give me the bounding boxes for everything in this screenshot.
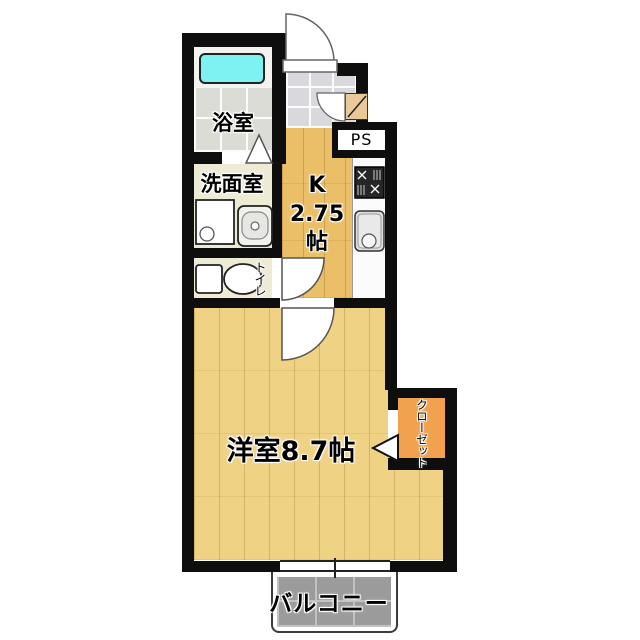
- shoe-cabinet: [345, 93, 368, 120]
- kitchen-counter: [352, 158, 385, 298]
- western-room-label: 洋室8.7帖: [191, 429, 391, 468]
- closet-label: クローゼット: [414, 399, 430, 459]
- floor-plan: 浴室 洗面室 トイレ K 2.75 帖 PS 洋室8.7帖 クローゼット バルコ…: [0, 0, 640, 640]
- room-door-opening: [280, 298, 334, 308]
- bathroom-door-opening: [222, 152, 272, 164]
- washroom-label: 洗面室: [188, 168, 276, 198]
- wall-right-kitchen: [385, 122, 397, 390]
- wall-bathroom-right: [272, 33, 286, 164]
- wall-right-lower: [443, 470, 457, 572]
- kitchen-label-unit: 帖: [285, 229, 349, 258]
- kitchen-label: K 2.75 帖: [285, 172, 349, 258]
- entrance-door-swing: [286, 14, 334, 62]
- exterior-mask: [397, 308, 457, 388]
- wall-washroom-toilet: [182, 248, 282, 258]
- wall-top-bathroom: [182, 33, 284, 47]
- toilet-label: トイレ: [252, 261, 269, 301]
- balcony-window: [280, 560, 390, 572]
- kitchen-label-size: 2.75: [285, 201, 349, 230]
- balcony-label: バルコニー: [249, 584, 409, 618]
- pipe-space-label: PS: [338, 130, 385, 150]
- bathtub: [199, 53, 265, 84]
- bathroom-label: 浴室: [194, 107, 272, 137]
- toilet-door-opening: [272, 258, 282, 298]
- kitchen-label-letter: K: [285, 172, 349, 201]
